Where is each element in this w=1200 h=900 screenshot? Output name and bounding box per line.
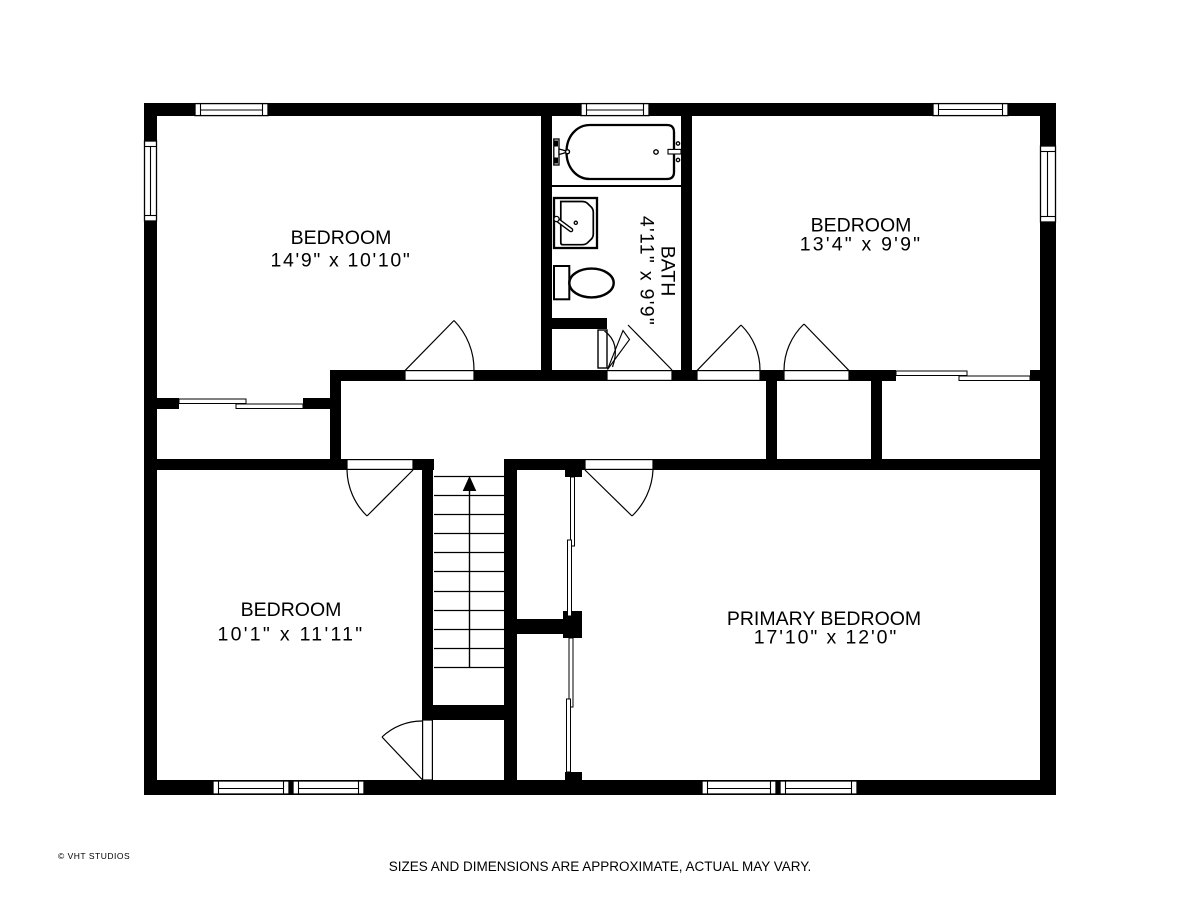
svg-text:© VHT STUDIOS: © VHT STUDIOS <box>58 851 130 861</box>
svg-text:13'4" x 9'9": 13'4" x 9'9" <box>800 234 923 256</box>
svg-text:14'9" x 10'10": 14'9" x 10'10" <box>271 250 412 272</box>
svg-text:BEDROOM: BEDROOM <box>291 227 392 249</box>
svg-text:BATH: BATH <box>657 246 679 297</box>
svg-text:BEDROOM: BEDROOM <box>241 599 342 621</box>
svg-text:4'11" x 9'9": 4'11" x 9'9" <box>636 216 658 326</box>
svg-text:SIZES AND DIMENSIONS ARE APPRO: SIZES AND DIMENSIONS ARE APPROXIMATE, AC… <box>389 859 812 874</box>
svg-text:10'1" x 11'11": 10'1" x 11'11" <box>217 623 364 645</box>
svg-text:17'10" x 12'0": 17'10" x 12'0" <box>754 627 898 649</box>
